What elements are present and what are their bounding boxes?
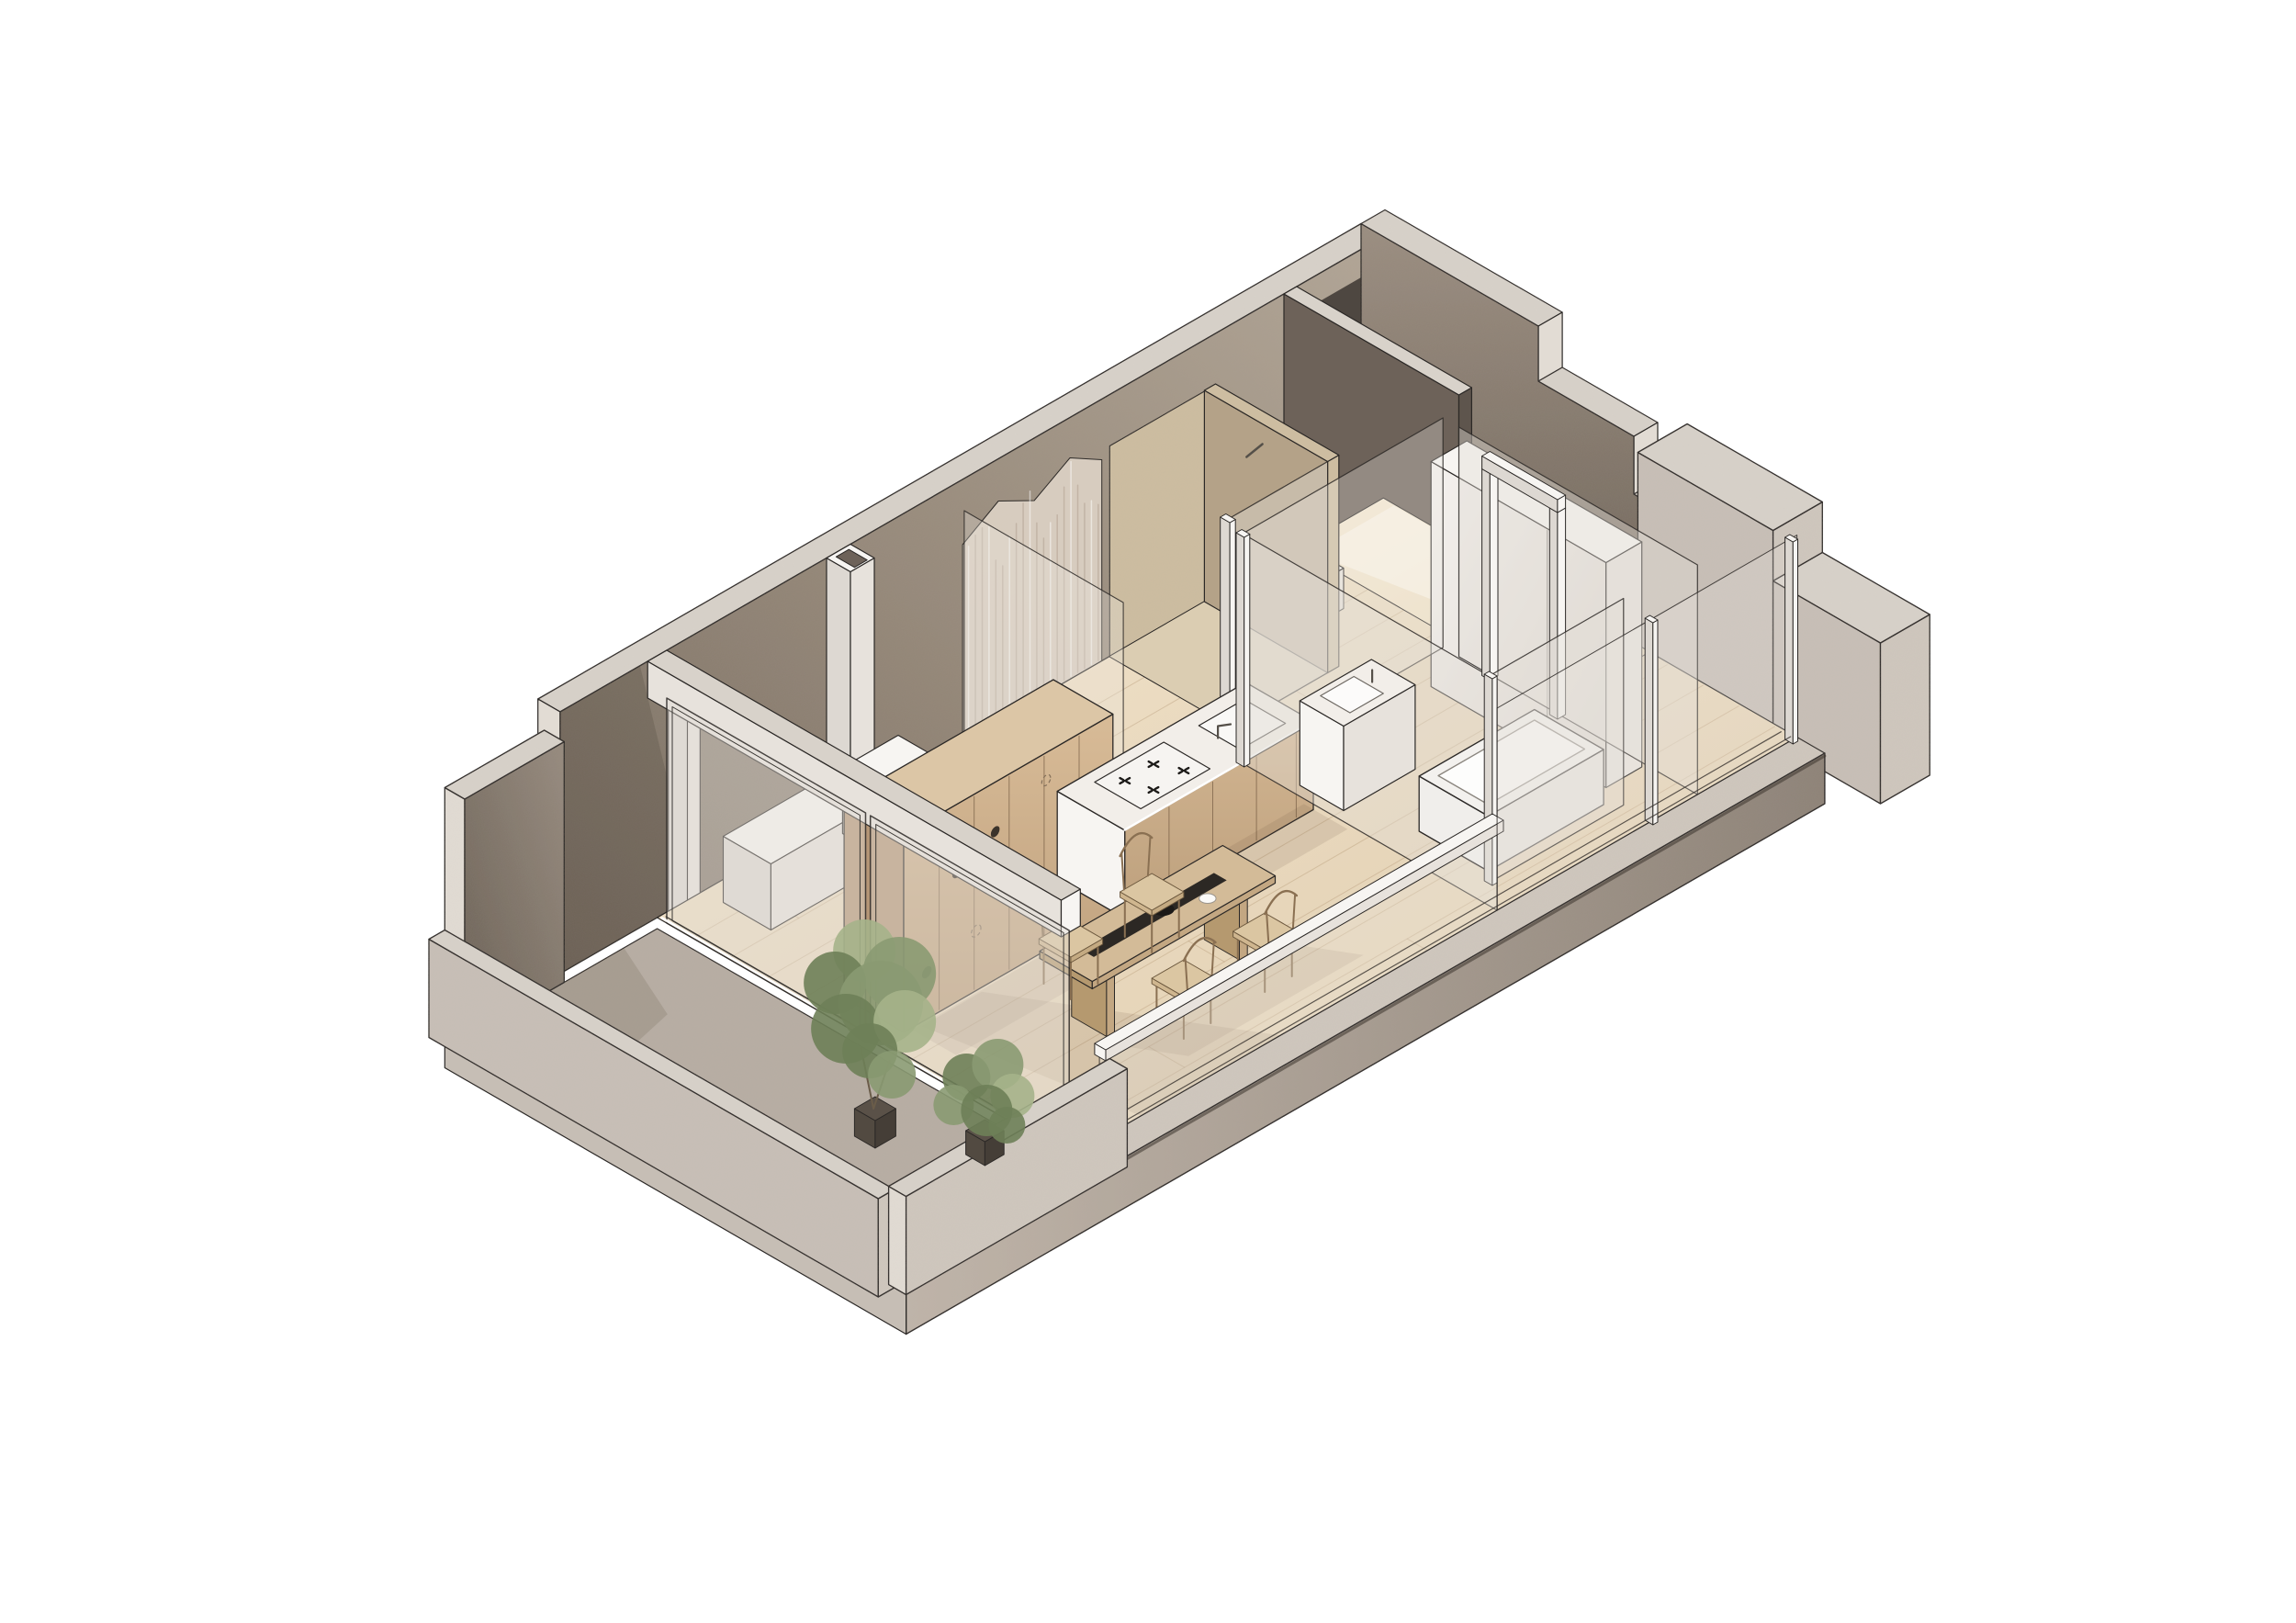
right-front-post-2: [1785, 535, 1798, 744]
scene-layers: [0, 0, 2296, 1623]
right-front-post-1: [1645, 615, 1658, 825]
apartment-axonometric-svg: [0, 0, 2296, 1623]
architectural-axonometric-cutaway: [0, 0, 2296, 1623]
entry-door-post-1: [1482, 465, 1498, 681]
bath-glass-post: [1236, 530, 1250, 768]
